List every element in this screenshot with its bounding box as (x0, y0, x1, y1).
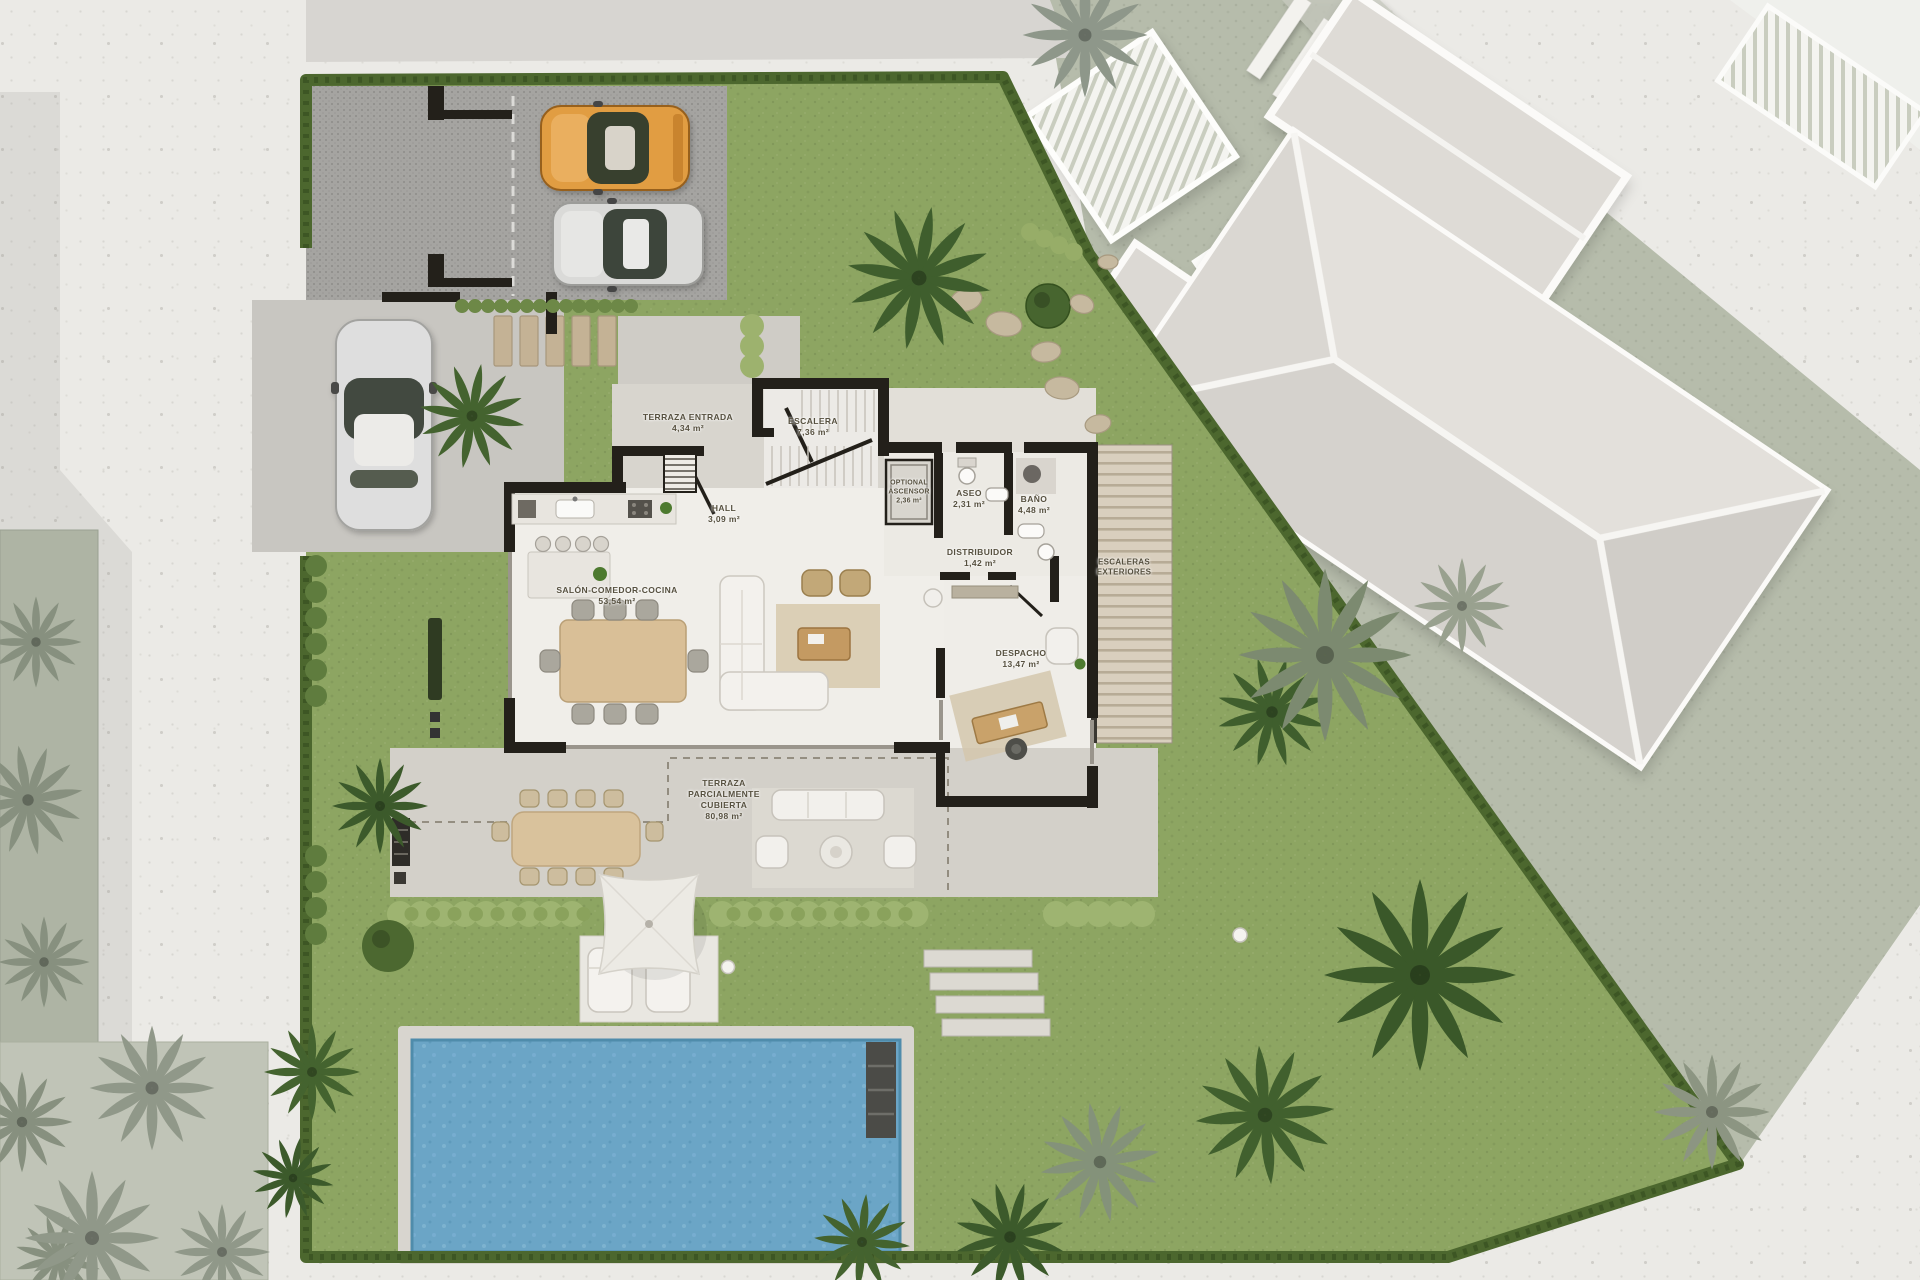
topiary-shade (1034, 292, 1050, 308)
pool-steps (866, 1042, 896, 1138)
site-plan-drawing (0, 0, 1920, 1280)
garden-light (1233, 928, 1247, 942)
garden-planter-dark (428, 618, 442, 738)
silver-car-driveway (331, 320, 437, 530)
site-plan: TERRAZA ENTRADA 4,34 m² ESCALERA 7,36 m²… (0, 0, 1920, 1280)
bush-shade (372, 930, 390, 948)
orange-car (541, 101, 689, 195)
round-bush (362, 920, 414, 972)
entry-walkway (618, 316, 800, 386)
garden-light (722, 961, 735, 974)
silver-car-parked (553, 198, 703, 292)
hall-closet (664, 454, 696, 492)
parasol (599, 874, 707, 980)
street-top (306, 0, 1072, 62)
pool-water (412, 1040, 900, 1252)
outdoor-lounge-set (752, 788, 916, 888)
exterior-stairs (1091, 445, 1172, 743)
optional-elevator (886, 460, 932, 524)
topiary-tree (1026, 284, 1070, 328)
